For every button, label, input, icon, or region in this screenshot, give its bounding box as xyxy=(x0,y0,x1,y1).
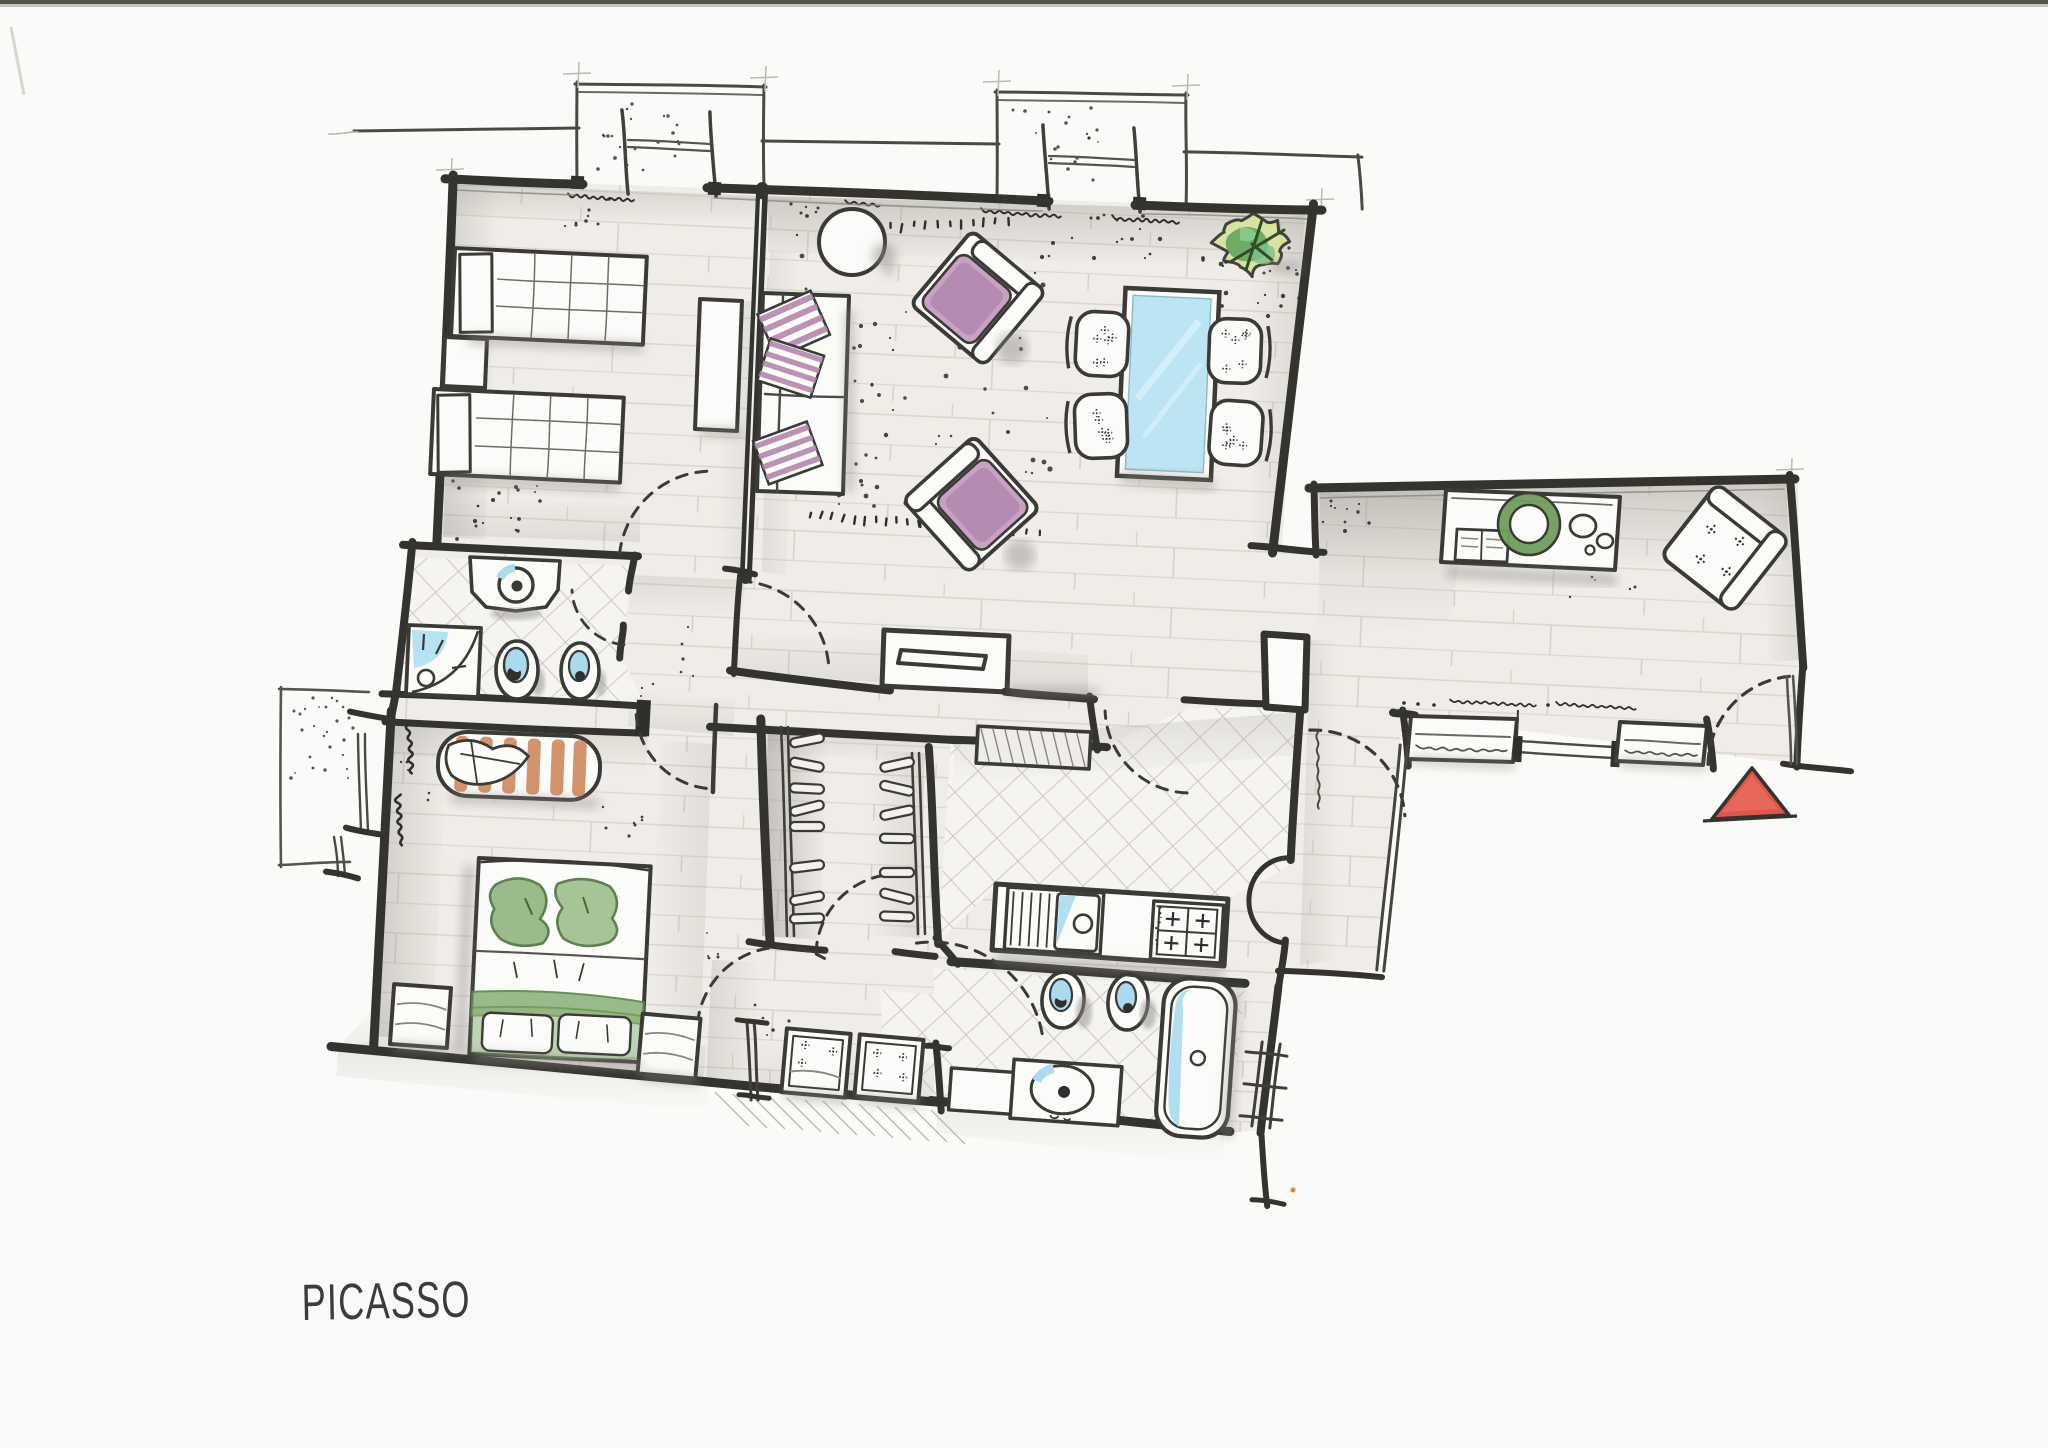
svg-text:PICASSO: PICASSO xyxy=(301,1272,471,1332)
